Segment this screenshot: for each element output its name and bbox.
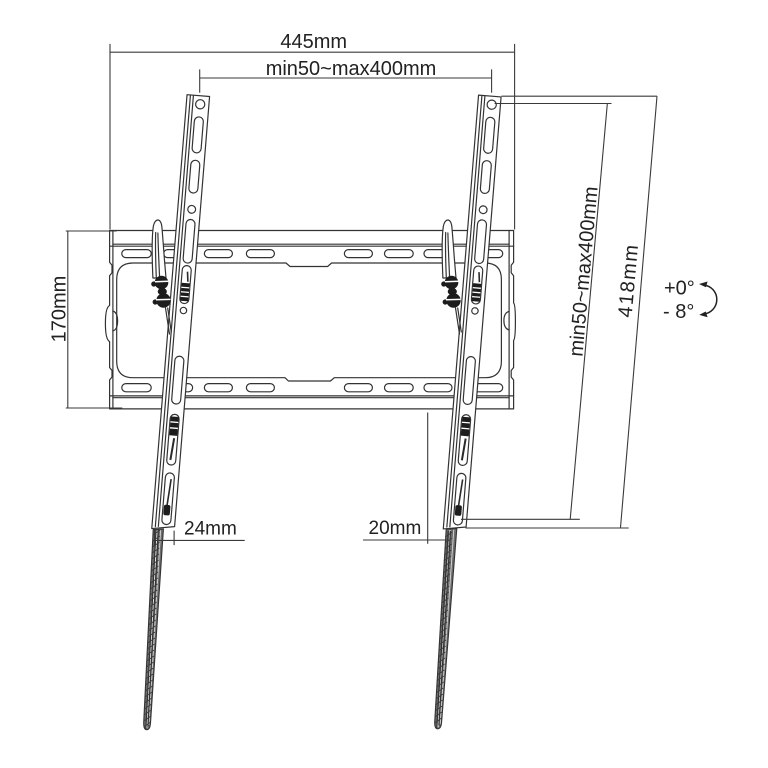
svg-text:24mm: 24mm [184,519,237,540]
svg-text:min50~max400mm: min50~max400mm [266,58,437,80]
svg-text:20mm: 20mm [369,518,422,539]
svg-text:+0°: +0° [664,277,695,299]
svg-text:170mm: 170mm [48,276,70,343]
svg-text:445mm: 445mm [280,31,347,53]
svg-text:- 8°: - 8° [663,301,694,323]
